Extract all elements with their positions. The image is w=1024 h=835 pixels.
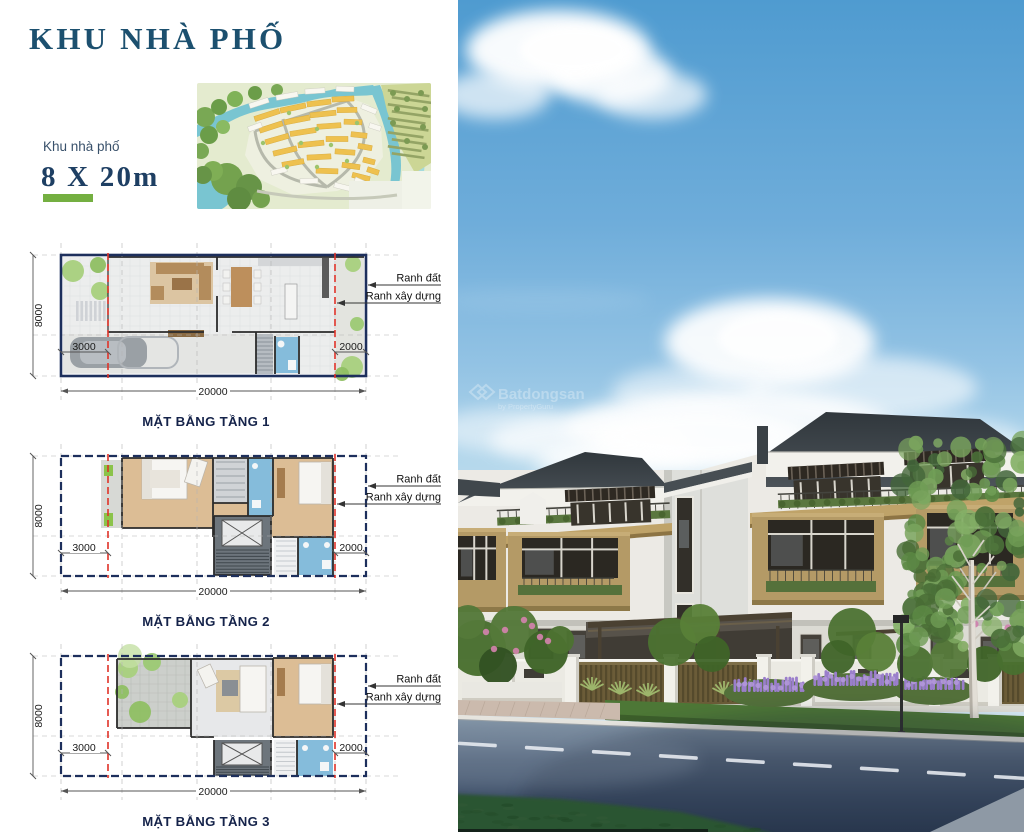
svg-text:8 X 20m: 8 X 20m	[41, 161, 160, 193]
svg-text:8000: 8000	[33, 304, 45, 328]
svg-text:MẶT BẰNG TẦNG 1: MẶT BẰNG TẦNG 1	[142, 414, 270, 429]
svg-text:20000: 20000	[198, 786, 227, 798]
svg-text:Ranh xây dựng: Ranh xây dựng	[366, 692, 441, 704]
svg-text:3000: 3000	[72, 542, 96, 554]
svg-text:2000: 2000	[339, 742, 363, 754]
svg-text:20000: 20000	[198, 586, 227, 598]
svg-text:Ranh đất: Ranh đất	[396, 474, 441, 486]
svg-text:Ranh xây dựng: Ranh xây dựng	[366, 492, 441, 504]
svg-text:2000: 2000	[339, 542, 363, 554]
svg-text:by PropertyGuru: by PropertyGuru	[498, 402, 553, 411]
svg-text:2000: 2000	[339, 341, 363, 353]
svg-text:KHU NHÀ PHỐ: KHU NHÀ PHỐ	[29, 20, 286, 56]
svg-text:MẶT BẰNG TẦNG 2: MẶT BẰNG TẦNG 2	[142, 614, 270, 629]
svg-text:3000: 3000	[72, 341, 96, 353]
svg-text:MẶT BẰNG TẦNG 3: MẶT BẰNG TẦNG 3	[142, 814, 270, 829]
svg-text:Batdongsan: Batdongsan	[498, 386, 585, 403]
svg-text:8000: 8000	[33, 504, 45, 528]
svg-text:Ranh đất: Ranh đất	[396, 273, 441, 285]
svg-text:3000: 3000	[72, 742, 96, 754]
svg-text:8000: 8000	[33, 704, 45, 728]
svg-text:20000: 20000	[198, 386, 227, 398]
svg-text:Ranh đất: Ranh đất	[396, 674, 441, 686]
svg-text:Ranh xây dựng: Ranh xây dựng	[366, 291, 441, 303]
svg-text:Khu nhà phố: Khu nhà phố	[43, 139, 120, 154]
